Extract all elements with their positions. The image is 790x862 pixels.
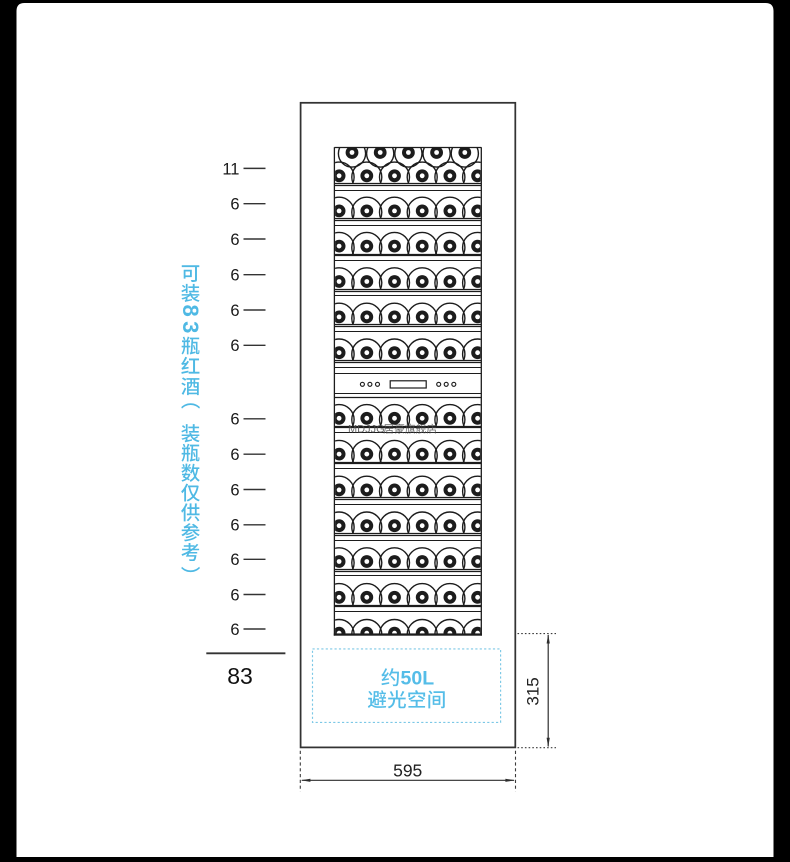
svg-text:6: 6 [230,411,239,429]
svg-text:6: 6 [230,267,239,285]
svg-text:6: 6 [230,196,239,214]
svg-text:6: 6 [230,551,239,569]
svg-text:6: 6 [230,337,239,355]
svg-text:6: 6 [230,302,239,320]
svg-text:50L: 50L [401,667,435,689]
svg-text:8: 8 [178,304,203,316]
svg-text:83: 83 [227,663,253,689]
svg-text:11: 11 [222,160,239,178]
svg-text:6: 6 [230,586,239,604]
svg-text:6: 6 [230,517,239,535]
svg-text:315: 315 [523,677,542,705]
svg-text:6: 6 [230,231,239,249]
svg-text:6: 6 [230,621,239,639]
svg-text:3: 3 [178,321,203,333]
svg-text:6: 6 [230,446,239,464]
svg-text:MDJJG: MDJJG [348,424,385,436]
svg-text:6: 6 [230,481,239,499]
svg-text:595: 595 [393,761,422,781]
